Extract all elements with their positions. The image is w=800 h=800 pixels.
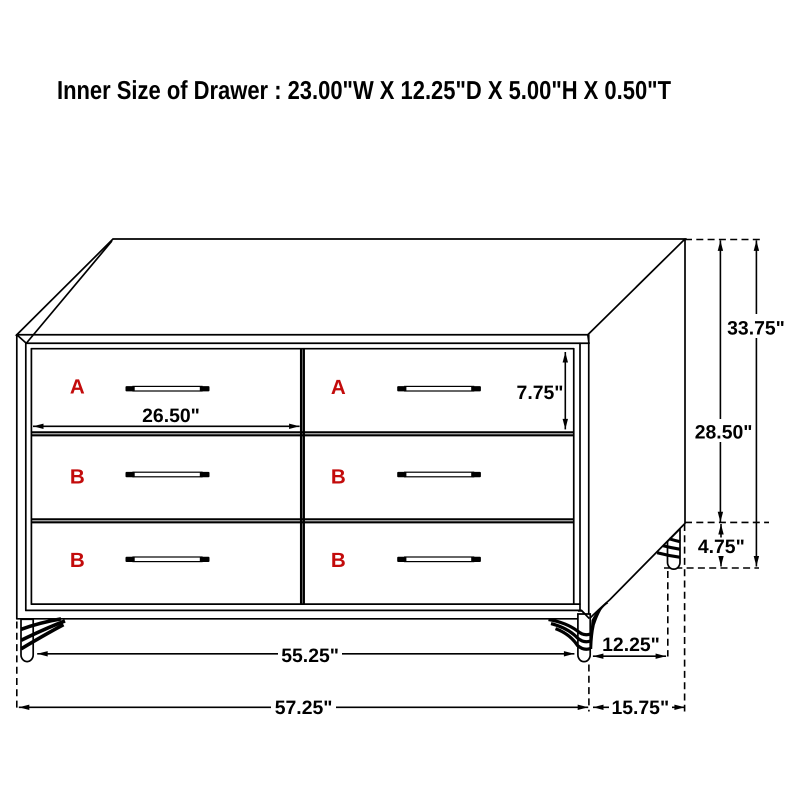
svg-text:7.75": 7.75" <box>517 382 564 404</box>
svg-text:15.75": 15.75" <box>611 697 669 719</box>
svg-text:B: B <box>70 549 85 572</box>
svg-text:28.50": 28.50" <box>695 422 753 444</box>
svg-text:12.25": 12.25" <box>602 634 660 656</box>
svg-text:57.25": 57.25" <box>275 697 333 719</box>
svg-text:26.50": 26.50" <box>142 405 200 427</box>
svg-text:Inner Size of Drawer : 23.00"W: Inner Size of Drawer : 23.00"W X 12.25"D… <box>57 75 671 105</box>
svg-text:4.75": 4.75" <box>698 536 745 558</box>
svg-text:55.25": 55.25" <box>281 645 339 667</box>
svg-text:B: B <box>331 549 346 572</box>
svg-text:33.75": 33.75" <box>727 317 785 339</box>
svg-text:A: A <box>331 376 346 399</box>
svg-text:A: A <box>70 375 85 398</box>
svg-text:B: B <box>70 465 85 488</box>
svg-text:B: B <box>331 465 346 488</box>
